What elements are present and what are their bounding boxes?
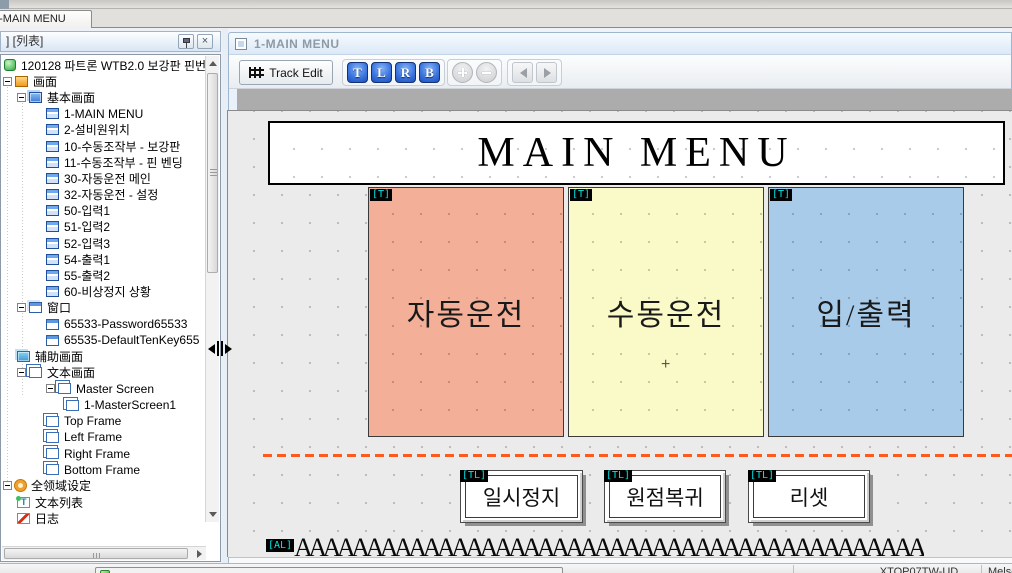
horizontal-resize-cursor-icon — [206, 341, 234, 357]
screen-icon — [46, 238, 59, 249]
track-edit-label: Track Edit — [269, 66, 323, 80]
nav-button-group — [507, 59, 562, 86]
tree-item-label: 10-수동조작부 - 보강판 — [64, 138, 180, 155]
tree-item-label: 54-출력1 — [64, 251, 110, 268]
tree-item-label: Right Frame — [64, 447, 130, 461]
tree-item[interactable]: 50-입력1 — [2, 203, 205, 219]
tree-item[interactable]: 120128 파트론 WTB2.0 보강판 핀번 — [2, 57, 205, 73]
tree-item[interactable]: 文本画面 — [2, 365, 205, 381]
expander-minus-icon[interactable] — [17, 303, 26, 312]
tree-item[interactable]: 11-수동조작부 - 핀 벤딩 — [2, 154, 205, 170]
tree-item-label: 辅助画面 — [35, 348, 83, 365]
tree-item-label: 65533-Password65533 — [64, 317, 187, 331]
tree-item[interactable]: 窗口 — [2, 300, 205, 316]
tree-item-label: 1-MasterScreen1 — [84, 398, 176, 412]
screen-icon — [46, 124, 59, 135]
tree-item-label: 120128 파트론 WTB2.0 보강판 핀번 — [21, 57, 205, 74]
project-icon — [4, 59, 16, 71]
touch-object-tag: [T] — [770, 189, 792, 201]
zoom-in-icon[interactable] — [452, 62, 473, 83]
top-toolbar-fragment — [0, 0, 1012, 9]
alarm-object-tag: [AL] — [266, 539, 294, 552]
action-button-label: 일시정지 — [483, 482, 560, 512]
expander-minus-icon[interactable] — [17, 93, 26, 102]
project-panel: ] [列表] × 120128 파트론 WTB2.0 보강판 핀번画面基本画面1… — [0, 28, 222, 558]
tree-rows: 120128 파트론 WTB2.0 보강판 핀번画面基本画面1-MAIN MEN… — [2, 57, 205, 525]
screen-icon — [46, 221, 59, 232]
frame-icon — [58, 383, 71, 394]
menu-tile[interactable]: [T]수동운전+ — [568, 187, 764, 437]
frame-icon — [46, 432, 59, 443]
tree-item-label: 文本列表 — [35, 494, 83, 511]
action-button[interactable]: [TL]일시정지 — [460, 470, 583, 523]
tree-item[interactable]: 65535-DefaultTenKey655 — [2, 332, 205, 348]
window-menu-icon[interactable] — [235, 38, 247, 50]
textscreen-icon — [29, 367, 42, 378]
expander-minus-icon[interactable] — [3, 77, 12, 86]
window-icon — [46, 335, 59, 346]
status-device-model: XTOP07TW-UD — [860, 566, 978, 573]
editor-title: 1-MAIN MENU — [254, 37, 340, 51]
tree-item[interactable]: 60-비상정지 상황 — [2, 284, 205, 300]
touch-object-tag: [T] — [370, 189, 392, 201]
tree-item[interactable]: 52-입력3 — [2, 235, 205, 251]
gear-icon — [15, 480, 26, 491]
next-screen-icon[interactable] — [536, 62, 557, 83]
tree-item-label: Left Frame — [64, 430, 122, 444]
tab-main-menu[interactable]: 1-MAIN MENU — [0, 10, 92, 28]
panel-header: ] [列表] × — [0, 31, 221, 52]
scroll-up-icon[interactable] — [206, 56, 219, 71]
tree-item-label: Master Screen — [76, 382, 154, 396]
align-r-button[interactable]: R — [395, 62, 416, 83]
screens-icon — [29, 92, 42, 103]
tree-item-label: 文本画面 — [47, 364, 95, 381]
touch-object-tag: [T] — [570, 189, 592, 201]
frame-icon — [46, 448, 59, 459]
action-button-label: 리셋 — [790, 482, 829, 512]
action-button-label: 원점복귀 — [626, 482, 703, 512]
project-tree: 120128 파트론 WTB2.0 보강판 핀번画面基本画面1-MAIN MEN… — [0, 54, 221, 562]
expander-minus-icon[interactable] — [46, 384, 55, 393]
tree-item-label: 日志 — [35, 510, 59, 525]
menu-tile[interactable]: [T]입/출력 — [768, 187, 964, 437]
tree-item[interactable]: 10-수동조작부 - 보강판 — [2, 138, 205, 154]
frame-icon — [66, 400, 79, 411]
frame-icon — [46, 416, 59, 427]
tree-item[interactable]: Top Frame — [2, 413, 205, 429]
screen-icon — [46, 189, 59, 200]
status-bar: XTOP07TW-UD Melsec FX — [0, 563, 1012, 573]
tree-item-label: 32-자동운전 - 설정 — [64, 186, 158, 203]
tree-item-label: 50-입력1 — [64, 202, 110, 219]
close-icon[interactable]: × — [197, 34, 213, 49]
log-icon — [17, 513, 30, 524]
aux-icon — [17, 351, 30, 362]
panel-header-label: ] [列表] — [6, 34, 43, 48]
status-separator — [793, 565, 794, 573]
vertical-scrollbar[interactable] — [205, 56, 219, 522]
screen-icon — [46, 254, 59, 265]
menu-tile-label: 수동운전 — [607, 290, 725, 334]
touch-lamp-object-tag: [TL] — [748, 470, 776, 482]
tree-item[interactable]: Left Frame — [2, 429, 205, 445]
screen-title-object[interactable]: MAIN MENU — [268, 121, 1005, 185]
tree-item[interactable]: Master Screen — [2, 381, 205, 397]
tree-item-label: 2-설비원위치 — [64, 121, 130, 138]
touch-lamp-object-tag: [TL] — [604, 470, 632, 482]
screen-icon — [46, 205, 59, 216]
tree-item-label: 65535-DefaultTenKey655 — [64, 333, 199, 347]
screen-icon — [46, 270, 59, 281]
tree-item-label: Top Frame — [64, 414, 121, 428]
expander-minus-icon[interactable] — [17, 368, 26, 377]
zoom-button-group — [447, 59, 502, 86]
tree-item[interactable]: 1-MAIN MENU — [2, 106, 205, 122]
screen-icon — [46, 141, 59, 152]
tree-item[interactable]: 65533-Password65533 — [2, 316, 205, 332]
toolbar-fragment-icon — [0, 0, 9, 9]
cursor-cross-marker: + — [661, 356, 670, 374]
document-tab-bar: 1-MAIN MENU — [0, 9, 1012, 28]
scrollbar-thumb[interactable] — [207, 73, 218, 273]
editor-toolbar: Track Edit TLRB — [229, 55, 1011, 89]
alarm-text: AAAAAAAAAAAAAAAAAAAAAAAAAAAAAAAAAAAAAAAA… — [294, 537, 924, 558]
prev-screen-icon[interactable] — [512, 62, 533, 83]
tree-item-label: 52-입력3 — [64, 235, 110, 252]
horizontal-scrollbar[interactable] — [2, 546, 206, 560]
track-edit-button[interactable]: Track Edit — [239, 60, 333, 85]
frame-icon — [46, 464, 59, 475]
tree-item[interactable]: 基本画面 — [2, 89, 205, 105]
align-t-button[interactable]: T — [347, 62, 368, 83]
pin-icon[interactable] — [178, 34, 194, 49]
screen-icon — [46, 157, 59, 168]
status-plc-type: Melsec FX — [988, 566, 1012, 573]
align-l-button[interactable]: L — [371, 62, 392, 83]
scroll-right-icon[interactable] — [192, 547, 206, 560]
taskbar-fragment — [95, 567, 563, 573]
status-separator — [981, 565, 982, 573]
textlist-icon — [17, 497, 30, 508]
tree-item-label: 全领域设定 — [31, 477, 91, 494]
tree-item[interactable]: 51-입력2 — [2, 219, 205, 235]
tree-item-label: 30-자동운전 메인 — [64, 170, 151, 187]
tree-item-label: 51-입력2 — [64, 218, 110, 235]
tree-item-label: 1-MAIN MENU — [64, 107, 143, 121]
tree-item[interactable]: Bottom Frame — [2, 462, 205, 478]
zoom-out-icon[interactable] — [476, 62, 497, 83]
expander-minus-icon[interactable] — [3, 481, 12, 490]
menu-tile[interactable]: [T]자동운전 — [368, 187, 564, 437]
tree-item[interactable]: 日志 — [2, 510, 205, 525]
align-button-group: TLRB — [342, 59, 445, 86]
menu-tile-label: 입/출력 — [816, 290, 915, 334]
window-icon — [46, 319, 59, 330]
align-b-button[interactable]: B — [419, 62, 440, 83]
screen-title-text: MAIN MENU — [477, 129, 795, 177]
menu-tile-label: 자동운전 — [407, 290, 525, 334]
tree-item-label: 窗口 — [47, 299, 71, 316]
screen-icon — [46, 108, 59, 119]
tree-item[interactable]: 文本列表 — [2, 494, 205, 510]
tree-item[interactable]: 全领域设定 — [2, 478, 205, 494]
windows-icon — [29, 302, 42, 313]
tree-item-label: 基本画面 — [47, 89, 95, 106]
tree-item[interactable]: Right Frame — [2, 446, 205, 462]
scrollbar-thumb[interactable] — [4, 548, 188, 559]
application-window: 1-MAIN MENU ] [列表] × 120128 파트론 WTB2.0 보… — [0, 0, 1012, 573]
screen-icon — [46, 286, 59, 297]
scroll-down-icon[interactable] — [206, 507, 219, 522]
action-button[interactable]: [TL]원점복귀 — [604, 470, 726, 523]
tree-item-label: 11-수동조작부 - 핀 벤딩 — [64, 154, 183, 171]
editor-titlebar[interactable]: 1-MAIN MENU — [229, 33, 1011, 55]
screen-boundary-dashed-line — [263, 454, 1012, 457]
tree-item[interactable]: 54-출력1 — [2, 251, 205, 267]
monitor-icon — [15, 76, 28, 87]
tree-item-label: 60-비상정지 상황 — [64, 283, 151, 300]
tree-item[interactable]: 32-자동운전 - 설정 — [2, 187, 205, 203]
alarm-text-object[interactable]: [AL] AAAAAAAAAAAAAAAAAAAAAAAAAAAAAAAAAAA… — [266, 537, 966, 559]
screen-icon — [46, 173, 59, 184]
track-grid-icon — [249, 67, 264, 78]
tree-item[interactable]: 55-출력2 — [2, 267, 205, 283]
touch-lamp-object-tag: [TL] — [460, 470, 488, 482]
action-button[interactable]: [TL]리셋 — [748, 470, 870, 523]
tree-item-label: 55-출력2 — [64, 267, 110, 284]
tree-item-label: 画面 — [33, 73, 57, 90]
tree-item[interactable]: 1-MasterScreen1 — [2, 397, 205, 413]
tree-item[interactable]: 30-자동운전 메인 — [2, 170, 205, 186]
tree-item[interactable]: 2-설비원위치 — [2, 122, 205, 138]
tree-item[interactable]: 画面 — [2, 73, 205, 89]
tree-item[interactable]: 辅助画面 — [2, 348, 205, 364]
tree-item-label: Bottom Frame — [64, 463, 140, 477]
